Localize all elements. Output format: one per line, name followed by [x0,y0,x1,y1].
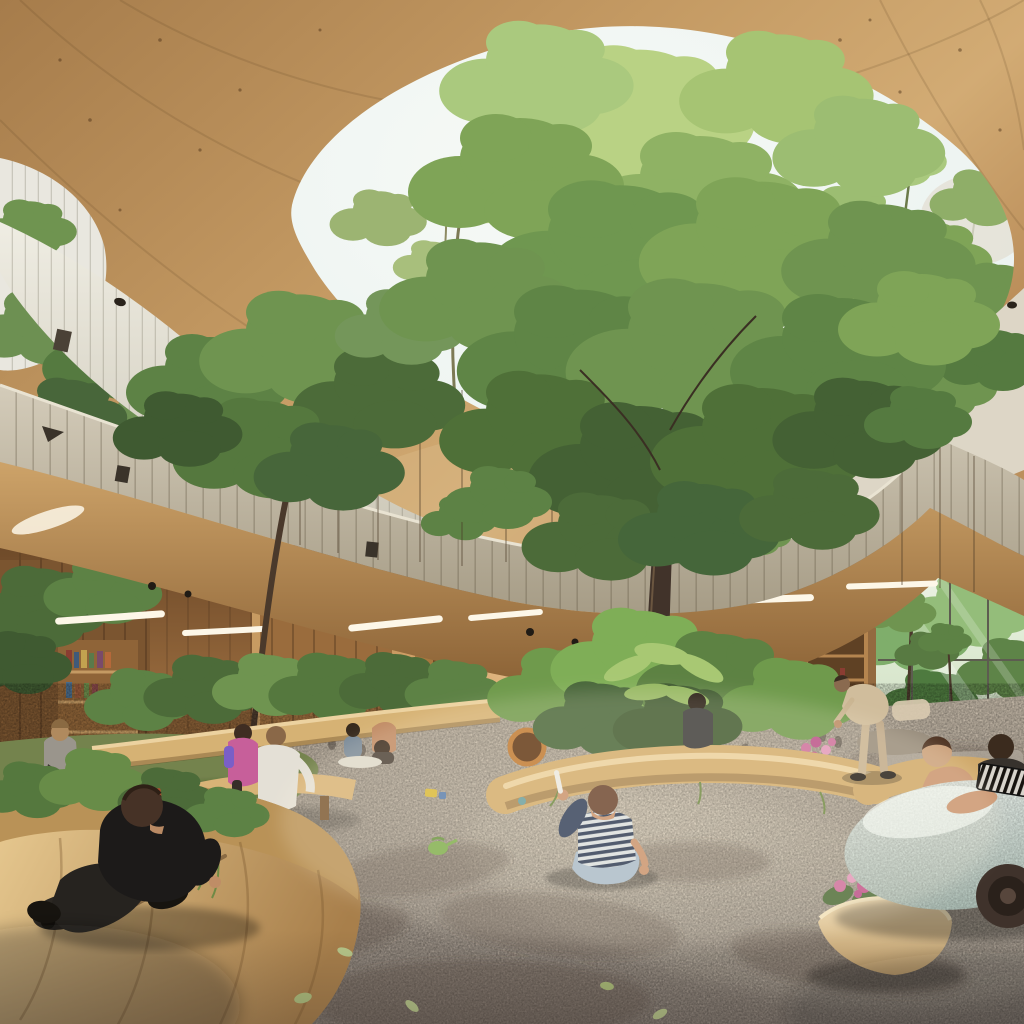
rendering-canvas [0,0,1024,1024]
white-chair [891,698,931,721]
kindergarten-atrium-rendering [0,0,1024,1024]
